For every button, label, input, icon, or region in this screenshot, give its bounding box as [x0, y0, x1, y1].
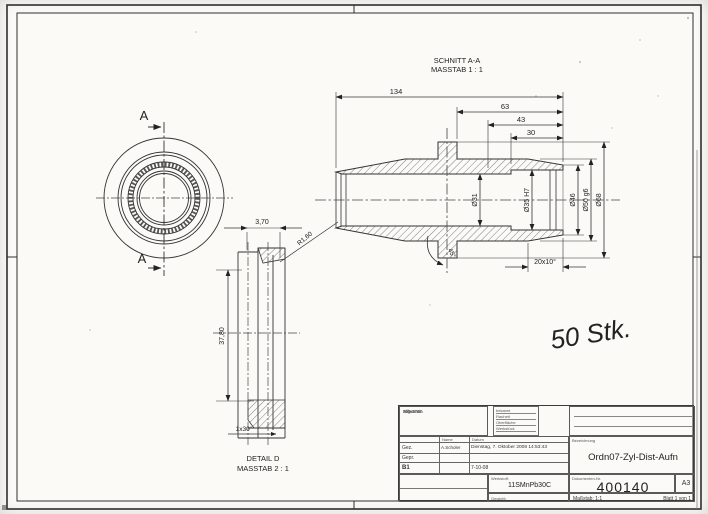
- dim-dia46: Ø46: [570, 193, 577, 206]
- notes-box: [569, 406, 695, 436]
- tolerance-note-box: Allgemein Toleranz: ISO 2768: [399, 406, 488, 436]
- front-view: A A: [96, 108, 233, 276]
- scanned-technical-drawing: A A SCHNITT A-A MASSTAB 1 : 1: [0, 0, 708, 514]
- material-box: Werkstoff: 11SMnPb30C: [488, 474, 569, 493]
- doc-number: 400140: [570, 479, 675, 493]
- empty-box: [399, 474, 488, 502]
- weight-label: Gewicht:: [491, 496, 507, 501]
- dim-43: 43: [517, 115, 525, 124]
- drawing-title-label: Bezeichnung: [572, 438, 595, 443]
- field-line: Werkstück: [496, 426, 536, 432]
- scale-sheet-strip: Maßstab: 1:1 Blatt 1 von 1: [569, 493, 695, 502]
- dim-chamfer130: 1x30°: [236, 425, 253, 433]
- dim-dia35: Ø35 H7: [524, 188, 531, 212]
- surface-field-box: bekannt Rauheit Oberfläche Werkstück: [493, 406, 539, 436]
- row-label-gez: Gez.: [400, 443, 440, 454]
- title-block: Allgemein Toleranz: ISO 2768 bekannt Rau…: [398, 405, 694, 501]
- section-arrow-label-bottom: A: [138, 251, 147, 266]
- dim-3780: 37,80: [219, 327, 226, 345]
- detail-view: R1,60 3,70 37,80 1x30° DETAIL D MASSTAB …: [213, 219, 338, 473]
- detail-view-title: DETAIL D: [247, 454, 281, 463]
- handwritten-quantity-note: 50 Stk.: [548, 313, 633, 355]
- paper-format-box: A3: [675, 474, 695, 493]
- doc-number-box: Dokumenten-Nr. 400140: [569, 474, 675, 493]
- dim-dia31: Ø31: [472, 193, 479, 206]
- material-label: Werkstoff:: [491, 476, 509, 481]
- sheet-value: Blatt 1 von 1: [663, 496, 691, 502]
- section-view-title: SCHNITT A-A: [434, 56, 481, 65]
- tolerance-line: ISO 2768: [403, 409, 422, 416]
- paper-format: A3: [676, 480, 695, 487]
- section-view-scale: MASSTAB 1 : 1: [431, 65, 483, 74]
- approval-date: 7-10-08: [470, 463, 569, 474]
- dim-dia50: Ø50 g6: [583, 188, 590, 211]
- drawing-title: Ordn07-Zyl-Dist-Aufn: [570, 452, 695, 463]
- author-name: A.Scholer: [440, 443, 470, 454]
- dim-370: 3,70: [255, 219, 269, 226]
- scale-value: Maßstab: 1:1: [573, 496, 602, 502]
- detail-view-scale: MASSTAB 2 : 1: [237, 464, 289, 473]
- dim-134: 134: [390, 87, 403, 96]
- section-view: SCHNITT A-A MASSTAB 1 : 1: [315, 56, 620, 273]
- dim-taper: 20x10°: [534, 258, 556, 266]
- dim-30: 30: [527, 128, 535, 137]
- dim-63: 63: [501, 102, 509, 111]
- section-arrow-label-top: A: [140, 108, 149, 123]
- drawing-title-box: Bezeichnung Ordn07-Zyl-Dist-Aufn: [569, 436, 695, 474]
- dim-dia68: Ø68: [596, 193, 603, 206]
- creation-date: Dienstag, 7. Oktober 2008 14:53:43: [470, 443, 569, 454]
- weight-box: Gewicht:: [488, 493, 569, 502]
- signature-table: Name Datum Gez. A.Scholer Dienstag, 7. O…: [399, 436, 569, 474]
- material-value: 11SMnPb30C: [489, 482, 569, 489]
- row-label-gepr: Gepr.: [400, 454, 440, 463]
- approval-initials: B1: [400, 463, 440, 474]
